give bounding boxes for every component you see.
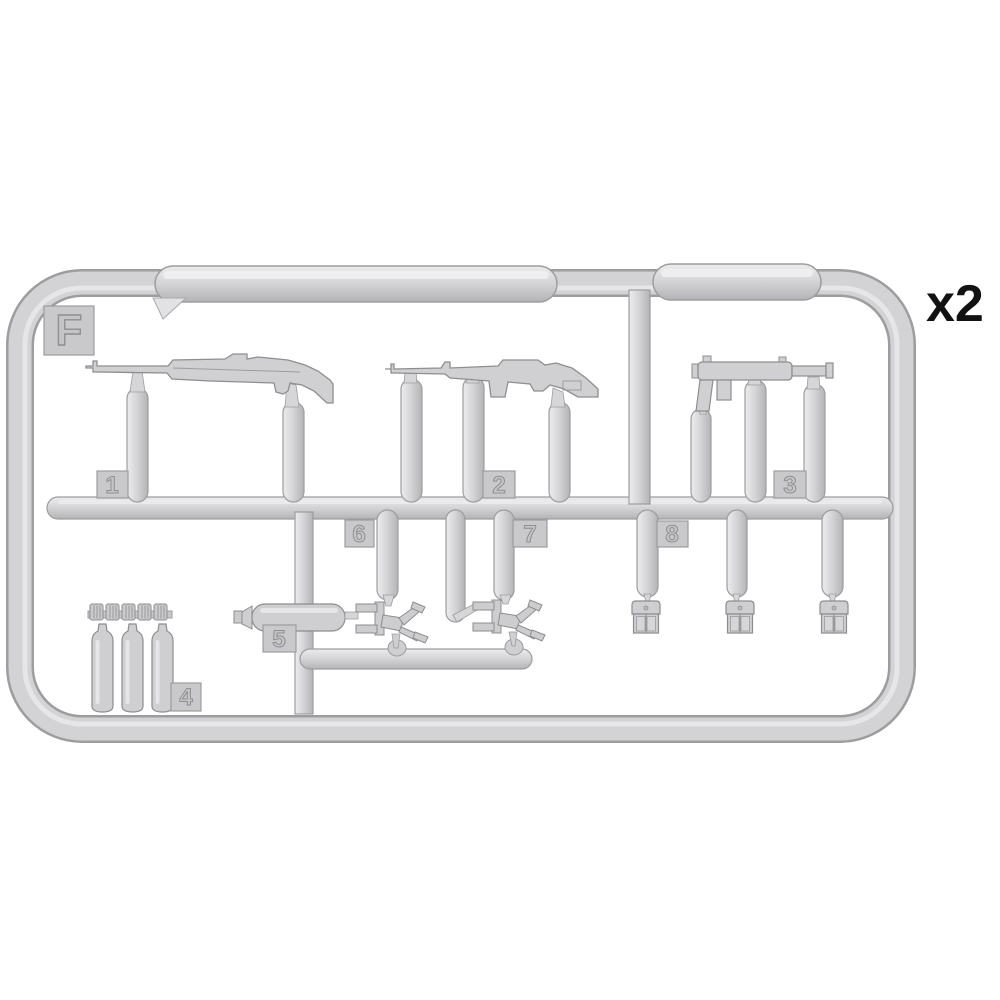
part-number-6: 6 <box>352 521 365 548</box>
part-number-3: 3 <box>783 472 796 499</box>
part-tab-7: 7 <box>513 520 547 548</box>
quantity-label: x2 <box>926 275 984 333</box>
runner-top-vertical <box>629 290 650 504</box>
part-tab-3: 3 <box>774 471 806 499</box>
part-number-7: 7 <box>523 521 536 548</box>
sprue-top-feed-bars <box>153 264 821 319</box>
part-tab-4: 4 <box>171 683 201 711</box>
part-number-4: 4 <box>179 684 193 711</box>
sprue-letter-label: F <box>56 306 83 355</box>
part-tab-2: 2 <box>483 471 515 499</box>
part-tab-8: 8 <box>657 521 688 548</box>
sprue-gate-wedge <box>153 298 186 319</box>
part-3-smg <box>691 356 833 502</box>
part-tab-6: 6 <box>345 520 374 548</box>
runner-lower-horizontal <box>300 639 532 669</box>
part-number-8: 8 <box>665 521 678 548</box>
part-number-5: 5 <box>272 626 285 653</box>
part-number-1: 1 <box>105 472 118 499</box>
part-tab-1: 1 <box>97 471 128 499</box>
sprue-illustration: F <box>0 0 1000 1000</box>
part-tab-5: 5 <box>263 625 296 653</box>
part-4-bottles <box>88 604 173 712</box>
part-number-2: 2 <box>492 472 505 499</box>
sprue-letter-tab: F <box>44 306 94 355</box>
sprue-photo-page: F <box>0 0 1000 1000</box>
